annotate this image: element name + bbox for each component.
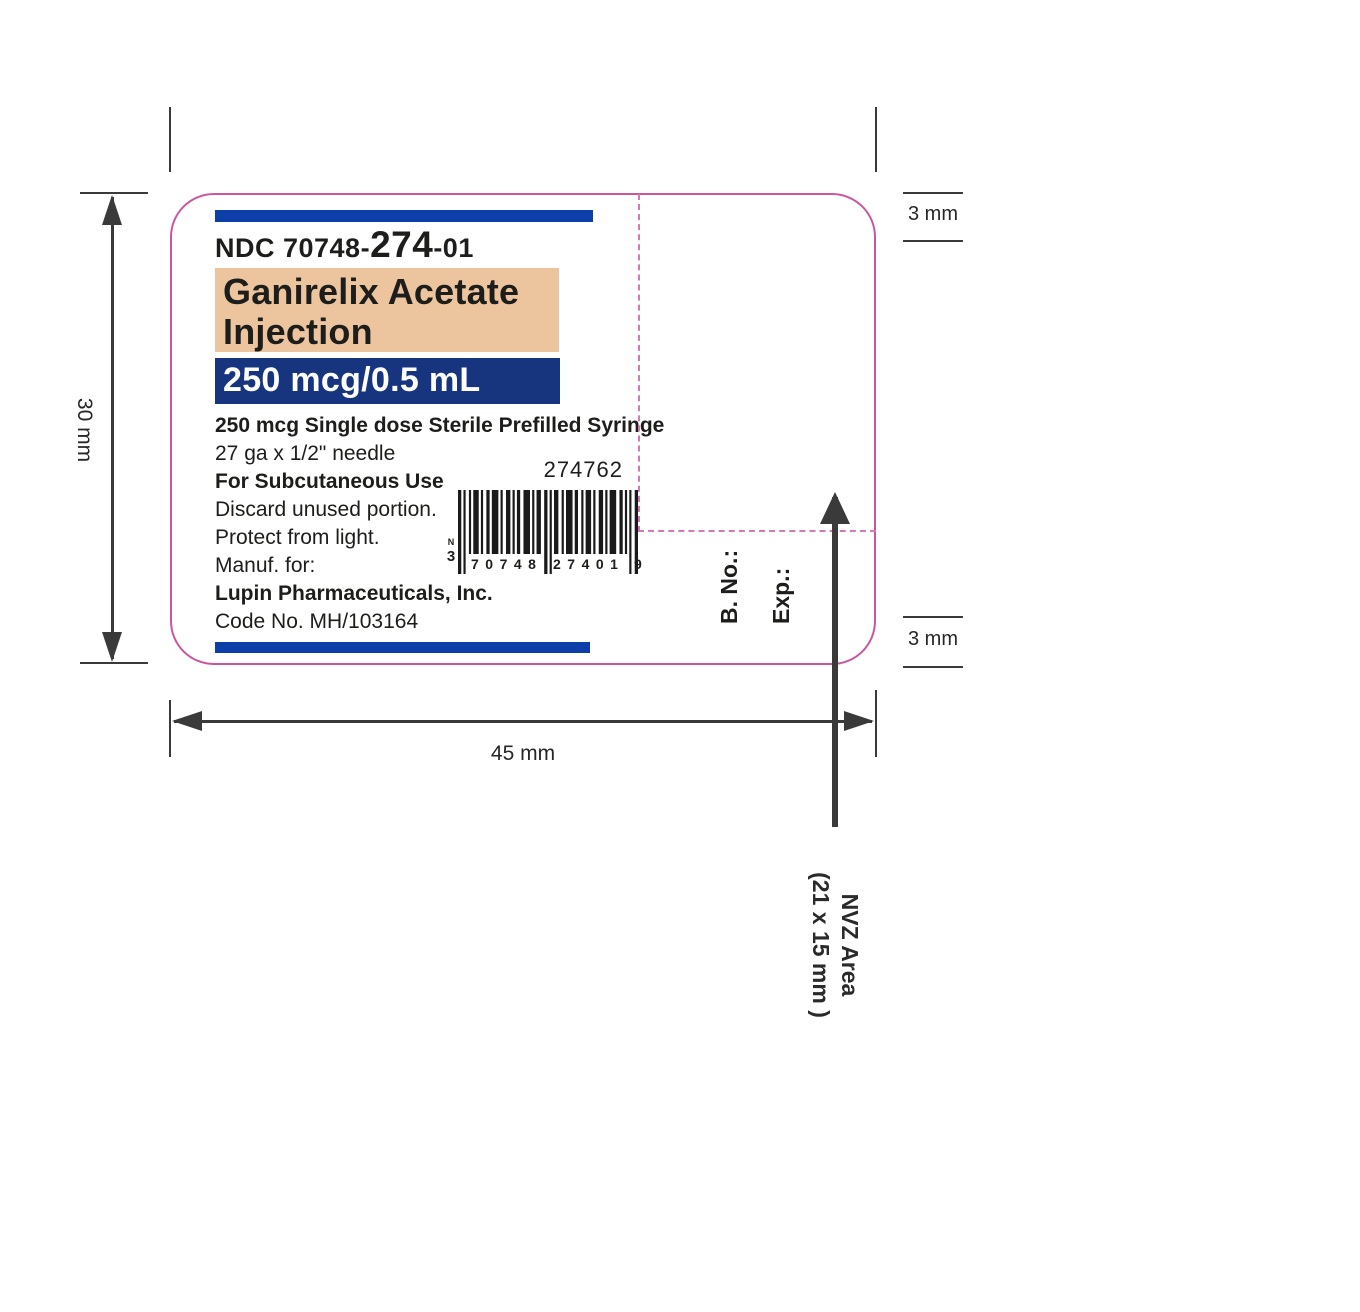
barcode-digit-group-1: 70748: [471, 556, 542, 572]
arrowhead-down-icon: [102, 632, 122, 662]
drug-name-line1: Ganirelix Acetate: [223, 272, 559, 312]
margin-reference-line: [903, 666, 963, 668]
barcode-lead-digit: 3: [444, 549, 458, 564]
batch-number-label: B. No.:: [716, 536, 742, 624]
arrowhead-right-icon: [844, 711, 874, 731]
label-text-line: 250 mcg Single dose Sterile Prefilled Sy…: [215, 412, 664, 440]
dimension-extension-line: [169, 700, 171, 757]
nvz-area-label-line2: (21 x 15 mm ): [806, 828, 835, 1062]
top-blue-bar: [215, 210, 593, 222]
arrowhead-up-icon: [102, 195, 122, 225]
height-dimension-arrow: [111, 197, 114, 659]
arrowhead-left-icon: [172, 711, 202, 731]
dimension-extension-line: [80, 192, 148, 194]
barcode-digit-group-2: 27401: [553, 556, 624, 572]
dimension-extension-line: [875, 690, 877, 757]
ndc-number: NDC 70748-274-01: [215, 226, 474, 267]
nvz-area-label: NVZ Area (21 x 15 mm ): [804, 828, 864, 1062]
nvz-area-label-line1: NVZ Area: [835, 828, 864, 1062]
width-dimension-label: 45 mm: [460, 742, 586, 766]
width-dimension-arrow: [174, 720, 872, 723]
nvz-area-outline: [638, 194, 876, 532]
strength-banner: 250 mcg/0.5 mL: [215, 358, 560, 404]
crop-mark-top-left: [169, 107, 171, 172]
margin-reference-line: [903, 192, 963, 194]
dimension-extension-line: [80, 662, 148, 664]
ndc-prefix: NDC 70748-: [215, 233, 370, 263]
upc-barcode: N 3 70748 27401 9: [458, 490, 638, 576]
crop-mark-top-right: [875, 107, 877, 172]
barcode-prefix-letter: N: [444, 538, 458, 547]
expiry-label: Exp.:: [768, 556, 794, 624]
ndc-suffix: -01: [433, 233, 474, 263]
drug-label: NDC 70748-274-01 Ganirelix Acetate Injec…: [170, 193, 876, 665]
margin-reference-line: [903, 240, 963, 242]
barcode-check-digit: 9: [634, 556, 642, 572]
barcode-lead: N 3: [444, 538, 458, 564]
drug-name-line2: Injection: [223, 312, 559, 352]
margin-reference-line: [903, 616, 963, 618]
item-number: 274762: [544, 457, 623, 483]
nvz-pointer-arrow: [832, 497, 838, 827]
margin-bottom-label: 3 mm: [897, 628, 969, 651]
label-specification-sheet: NDC 70748-274-01 Ganirelix Acetate Injec…: [0, 0, 1360, 1312]
arrowhead-up-icon: [820, 492, 850, 524]
drug-name-banner: Ganirelix Acetate Injection: [215, 268, 559, 352]
bottom-blue-bar: [215, 642, 590, 653]
label-text-line: Lupin Pharmaceuticals, Inc.: [215, 580, 664, 608]
height-dimension-label: 30 mm: [70, 390, 96, 470]
label-text-line: Code No. MH/103164: [215, 608, 664, 636]
margin-top-label: 3 mm: [897, 203, 969, 226]
ndc-product-code: 274: [370, 224, 433, 265]
